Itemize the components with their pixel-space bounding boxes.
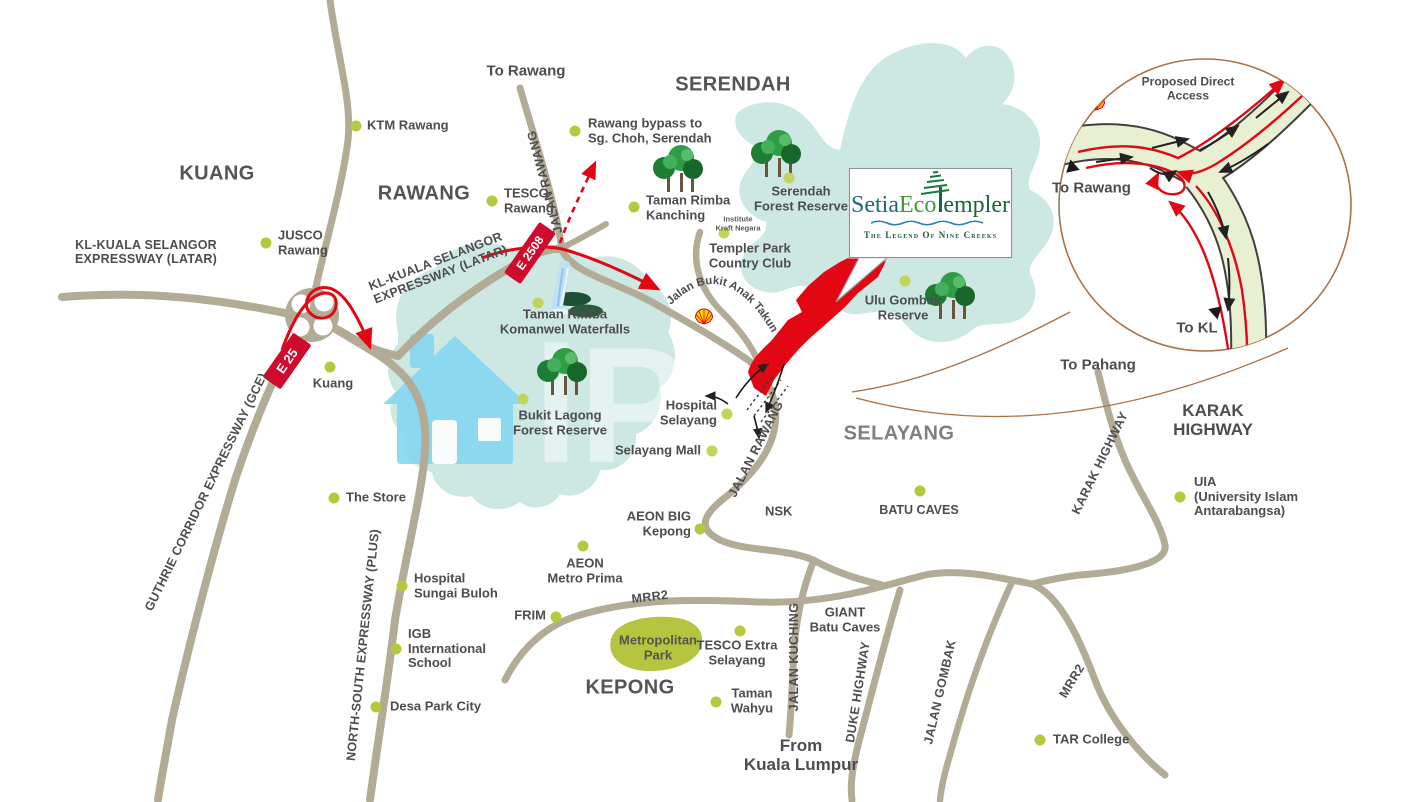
poi-label-bukit-lagong: Bukit Lagong Forest Reserve	[513, 408, 607, 437]
pine-tree-icon	[918, 170, 952, 196]
poi-dot-batu-caves	[915, 486, 926, 497]
poi-label-uia: UIA (University Islam Antarabangsa)	[1194, 475, 1298, 519]
poi-dot-bukit-lagong	[518, 394, 529, 405]
poi-label-aeon-big-kepong: AEON BIG Kepong	[627, 509, 691, 538]
poi-label-templer-park-country-club: Templer Park Country Club	[709, 241, 791, 270]
poi-label-serendah-forest-reserve: Serendah Forest Reserve	[754, 184, 848, 213]
area-label-kepong: KEPONG	[585, 677, 674, 700]
area-label-kuang: KUANG	[179, 163, 254, 186]
logo-tagline: The Legend Of Nine Creeks	[864, 230, 997, 240]
poi-dot-ktm	[351, 121, 362, 132]
poi-label-giant-batu-caves: GIANT Batu Caves	[810, 605, 881, 634]
poi-label-desa-park-city: Desa Park City	[390, 700, 481, 715]
poi-dot-kanching	[629, 202, 640, 213]
area-label-selayang: SELAYANG	[844, 423, 955, 446]
area-label-karak-highway: KARAK HIGHWAY	[1173, 401, 1253, 439]
poi-label-frim: FRIM	[514, 609, 546, 624]
poi-label-tesco-rawang: TESCO Rawang	[504, 186, 554, 215]
poi-label-aeon-metro-prima: AEON Metro Prima	[547, 556, 622, 585]
poi-label-komanwel-waterfalls: Taman Rimba Komanwel Waterfalls	[500, 307, 630, 336]
poi-dot-aeon-metro	[578, 541, 589, 552]
poi-label-igb-international-school: IGB International School	[408, 627, 486, 671]
inset-label-to-rawang: To Rawang	[1052, 181, 1131, 198]
inset-title-proposed-direct-access: Proposed Direct Access	[1142, 75, 1235, 102]
poi-dot-hospital-selayang	[722, 409, 733, 420]
poi-dot-taman-wahyu	[711, 697, 722, 708]
logo-text-templer: empler	[943, 193, 1010, 217]
poi-label-institute-kraft-negara: Institute Kraft Negara	[715, 215, 760, 234]
poi-label-the-store: The Store	[346, 491, 406, 506]
poi-label-jusco-rawang: JUSCO Rawang	[278, 228, 328, 257]
trees-icon-kanching	[653, 145, 703, 192]
poi-label-hospital-selayang: Hospital Selayang	[660, 398, 717, 427]
poi-label-metropolitan-park: Metropolitan Park	[619, 633, 697, 662]
poi-dot-tesco	[487, 196, 498, 207]
poi-label-rawang-bypass: Rawang bypass to Sg. Choh, Serendah	[588, 116, 712, 145]
poi-label-ktm-rawang: KTM Rawang	[367, 119, 449, 134]
poi-label-batu-caves: BATU CAVES	[879, 503, 958, 517]
direction-label-from-kuala-lumpur: From Kuala Lumpur	[744, 736, 858, 774]
poi-dot-selayang-mall	[707, 446, 718, 457]
poi-dot-tar	[1035, 735, 1046, 746]
poi-dot-frim	[551, 612, 562, 623]
poi-label-nsk: NSK	[765, 505, 792, 520]
poi-label-selayang-mall: Selayang Mall	[615, 444, 701, 459]
wave-underline	[871, 219, 991, 226]
poi-label-kuang: Kuang	[313, 377, 353, 392]
poi-dot-bypass	[570, 126, 581, 137]
inset-label-to-kl: To KL	[1176, 321, 1217, 338]
logo-text-setia: Setia	[851, 193, 899, 217]
poi-dot-aeon-big	[695, 524, 706, 535]
direction-label-to-rawang: To Rawang	[487, 64, 566, 81]
route-badge-e25: E 25	[263, 333, 312, 390]
direction-label-to-pahang: To Pahang	[1060, 358, 1136, 375]
road-label-jalan-kuching: JALAN KUCHING	[787, 603, 801, 712]
poi-dot-desa-park	[371, 702, 382, 713]
poi-dot-the-store	[329, 493, 340, 504]
setia-ecotempler-logo: SetiaEcoempler	[851, 187, 1010, 217]
shell-station-icon	[696, 309, 713, 324]
poi-label-tesco-extra-selayang: TESCO Extra Selayang	[697, 638, 778, 667]
poi-dot-kuang	[325, 362, 336, 373]
poi-label-tar-college: TAR College	[1053, 733, 1129, 748]
area-label-rawang: RAWANG	[378, 183, 470, 206]
poi-dot-jusco	[261, 238, 272, 249]
logo-text-eco: Eco	[899, 193, 936, 217]
poi-label-hospital-sungai-buloh: Hospital Sungai Buloh	[414, 571, 498, 600]
road-label-latar-west: KL-KUALA SELANGOR EXPRESSWAY (LATAR)	[75, 238, 217, 266]
poi-dot-serendah-fr	[784, 173, 795, 184]
poi-label-ulu-gombak-reserve: Ulu Gombak Reserve	[865, 293, 942, 322]
poi-dot-uia	[1175, 492, 1186, 503]
poi-dot-ulu-gombak	[900, 276, 911, 287]
poi-label-taman-wahyu: Taman Wahyu	[731, 686, 773, 715]
poi-dot-igb	[391, 644, 402, 655]
area-label-serendah: SERENDAH	[675, 74, 790, 97]
map-page: { "logo_card": { "setia": "Setia", "eco"…	[0, 0, 1424, 802]
poi-dot-tesco-extra	[735, 626, 746, 637]
setia-ecotempler-logo-card: SetiaEcoempler The Legend Of Nine Creeks	[849, 168, 1012, 258]
poi-dot-hosp-sg-buloh	[397, 581, 408, 592]
